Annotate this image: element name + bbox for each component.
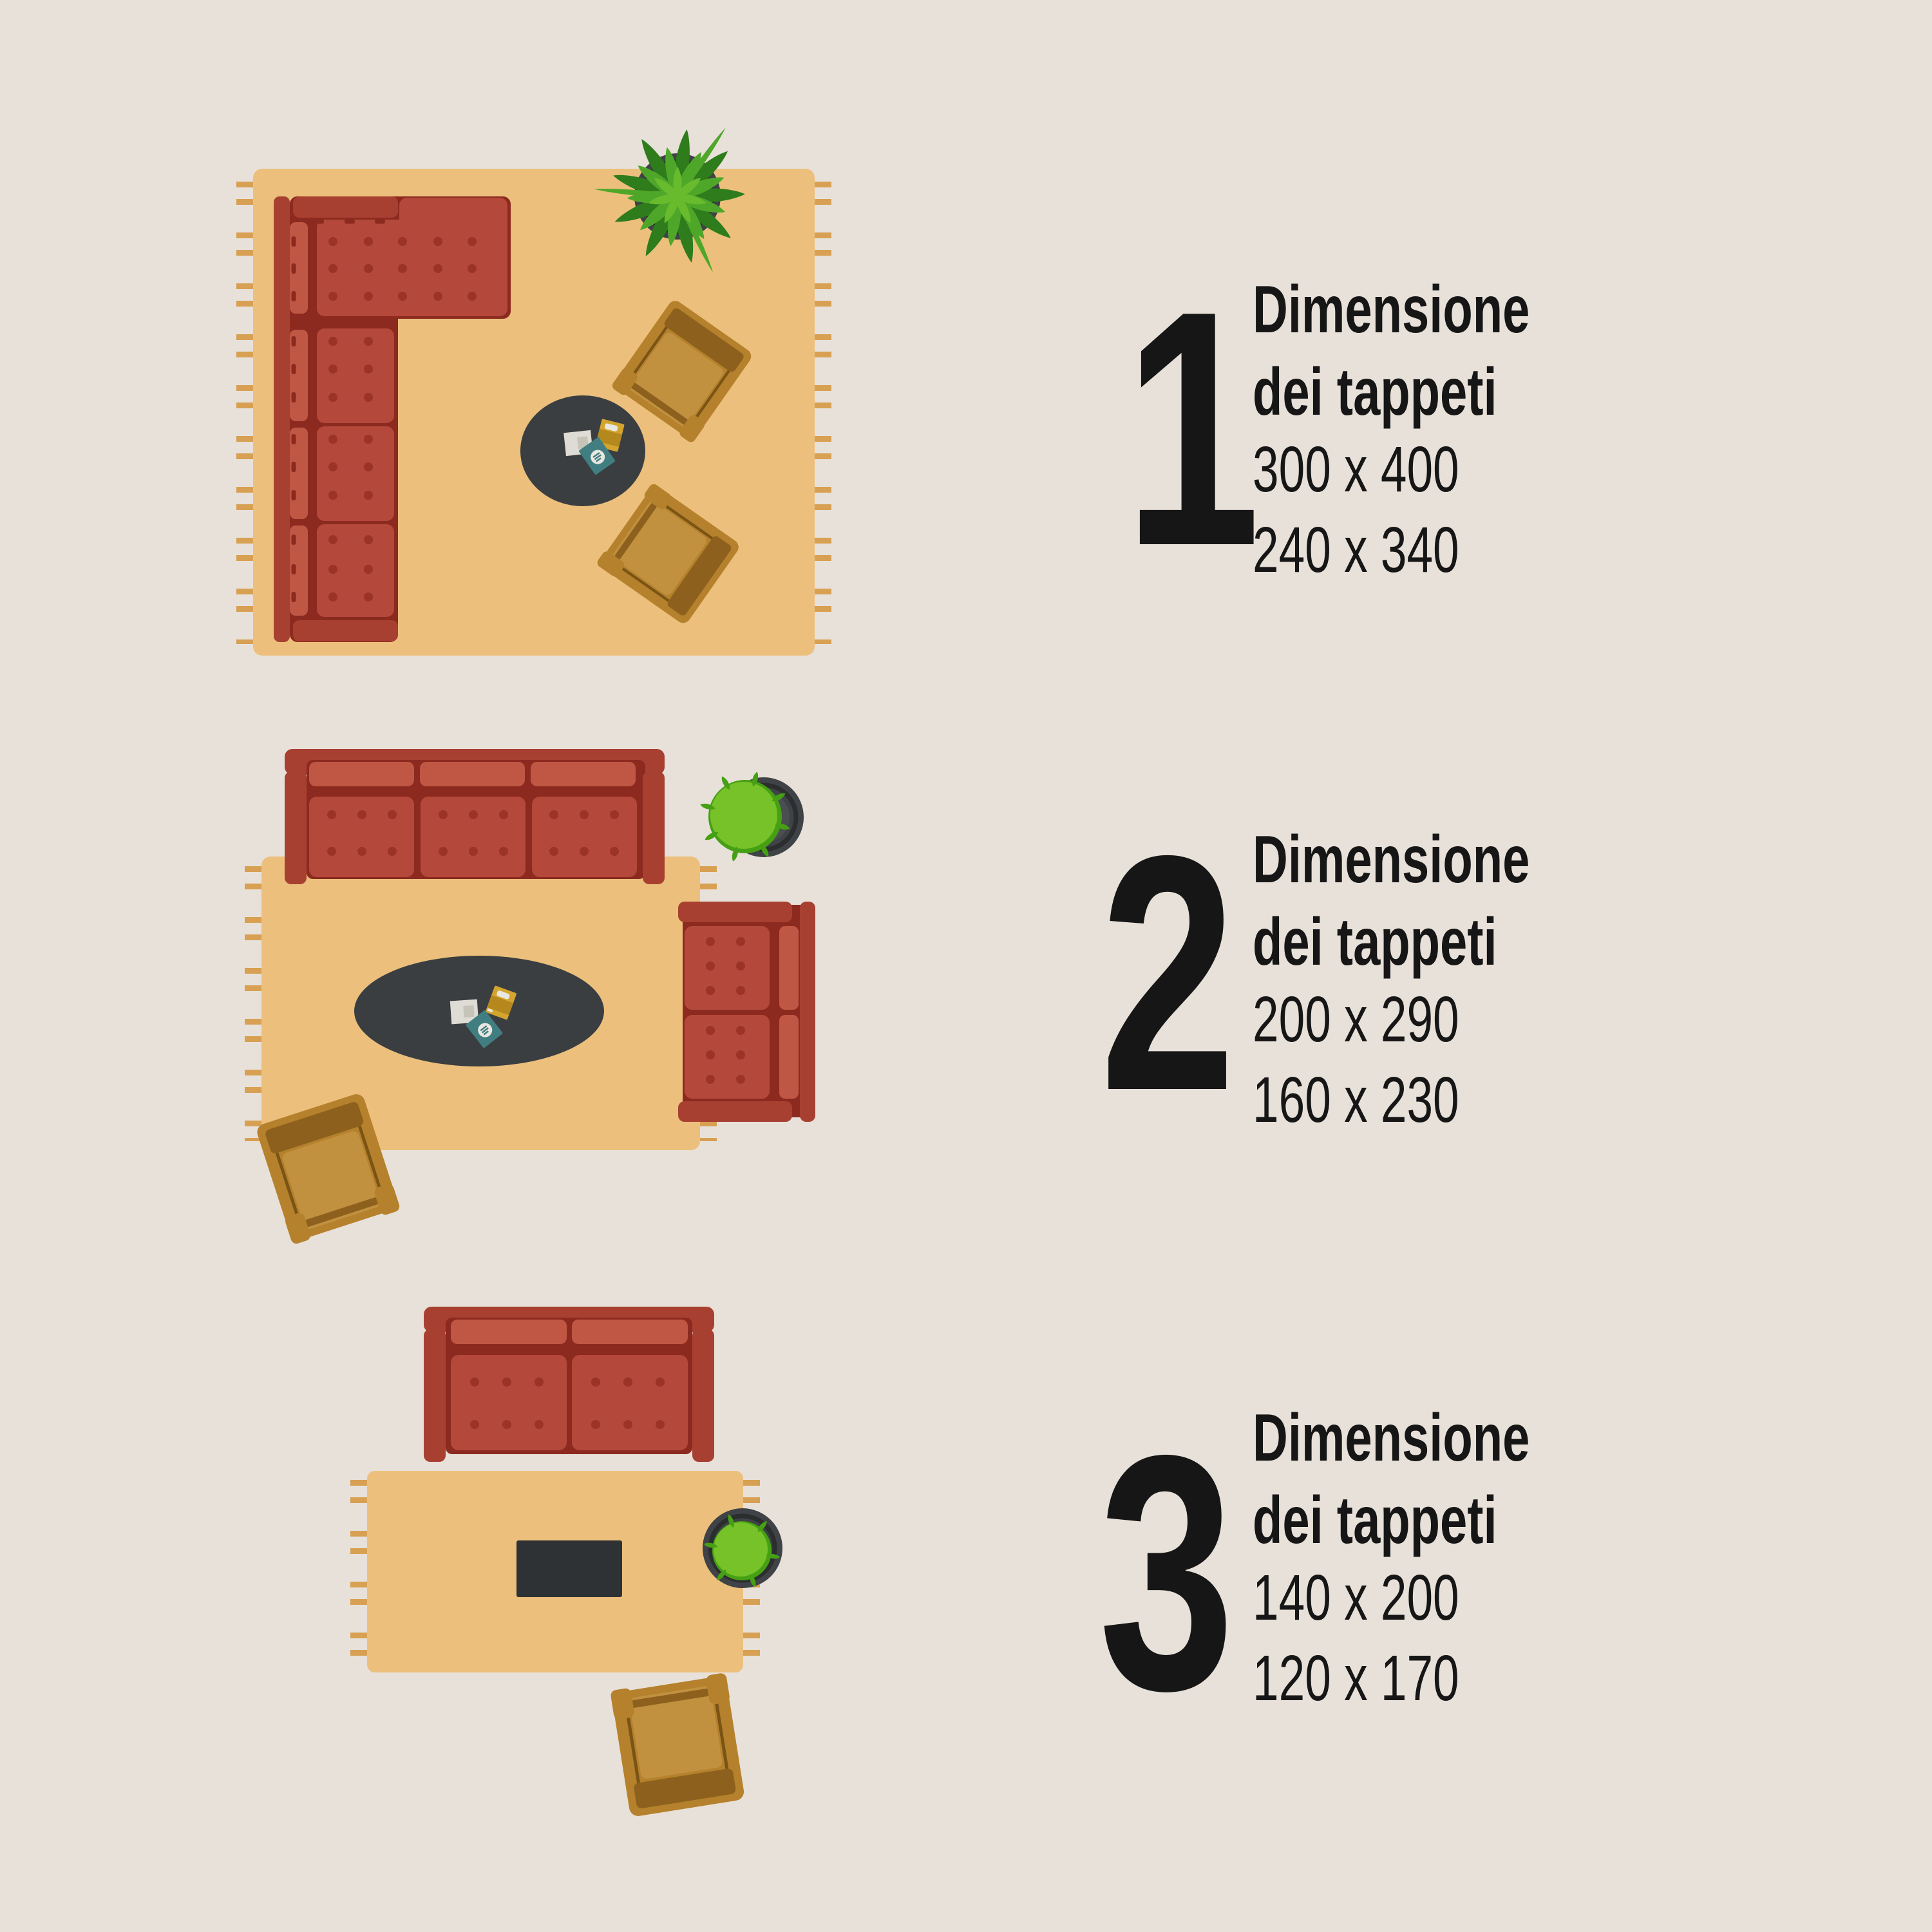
block-2-title-line-1: Dimensione	[1253, 819, 1529, 901]
potted-bush	[703, 1508, 782, 1588]
block-3-title-line-2: dei tappeti	[1253, 1479, 1529, 1562]
block-2-title-line-2: dei tappeti	[1253, 901, 1529, 983]
loveseat-sofa	[678, 902, 815, 1122]
room-illustrations	[0, 0, 1932, 1932]
block-2-size-secondary: 160 x 230	[1253, 1060, 1529, 1141]
block-1-title-line-1: Dimensione	[1253, 269, 1529, 351]
rug-size-block-1: Dimensione dei tappeti 300 x 400 240 x 3…	[1253, 269, 1529, 591]
block-2-size-primary: 200 x 290	[1253, 980, 1529, 1060]
step-number-3: 3	[1099, 1406, 1235, 1741]
scene-3	[359, 1307, 782, 1817]
three-seat-sofa	[285, 749, 665, 884]
infographic-canvas: 1 Dimensione dei tappeti 300 x 400 240 x…	[0, 0, 1932, 1932]
rect-coffee-table	[516, 1540, 622, 1597]
armchair	[610, 1672, 746, 1817]
oval-coffee-table	[354, 956, 604, 1066]
block-3-title-line-1: Dimensione	[1253, 1397, 1529, 1479]
scene-1	[245, 126, 823, 656]
block-3-size-secondary: 120 x 170	[1253, 1638, 1529, 1719]
block-1-title-line-2: dei tappeti	[1253, 351, 1529, 433]
block-3-size-primary: 140 x 200	[1253, 1558, 1529, 1638]
rug-size-block-3: Dimensione dei tappeti 140 x 200 120 x 1…	[1253, 1397, 1529, 1719]
step-number-1: 1	[1124, 261, 1260, 596]
rug-size-block-2: Dimensione dei tappeti 200 x 290 160 x 2…	[1253, 819, 1529, 1141]
step-number-2: 2	[1100, 806, 1236, 1141]
scene-2	[253, 749, 815, 1245]
round-coffee-table	[520, 395, 645, 506]
block-1-size-primary: 300 x 400	[1253, 430, 1529, 510]
two-seat-sofa	[424, 1307, 714, 1462]
block-1-size-secondary: 240 x 340	[1253, 510, 1529, 591]
potted-bush	[699, 771, 804, 862]
